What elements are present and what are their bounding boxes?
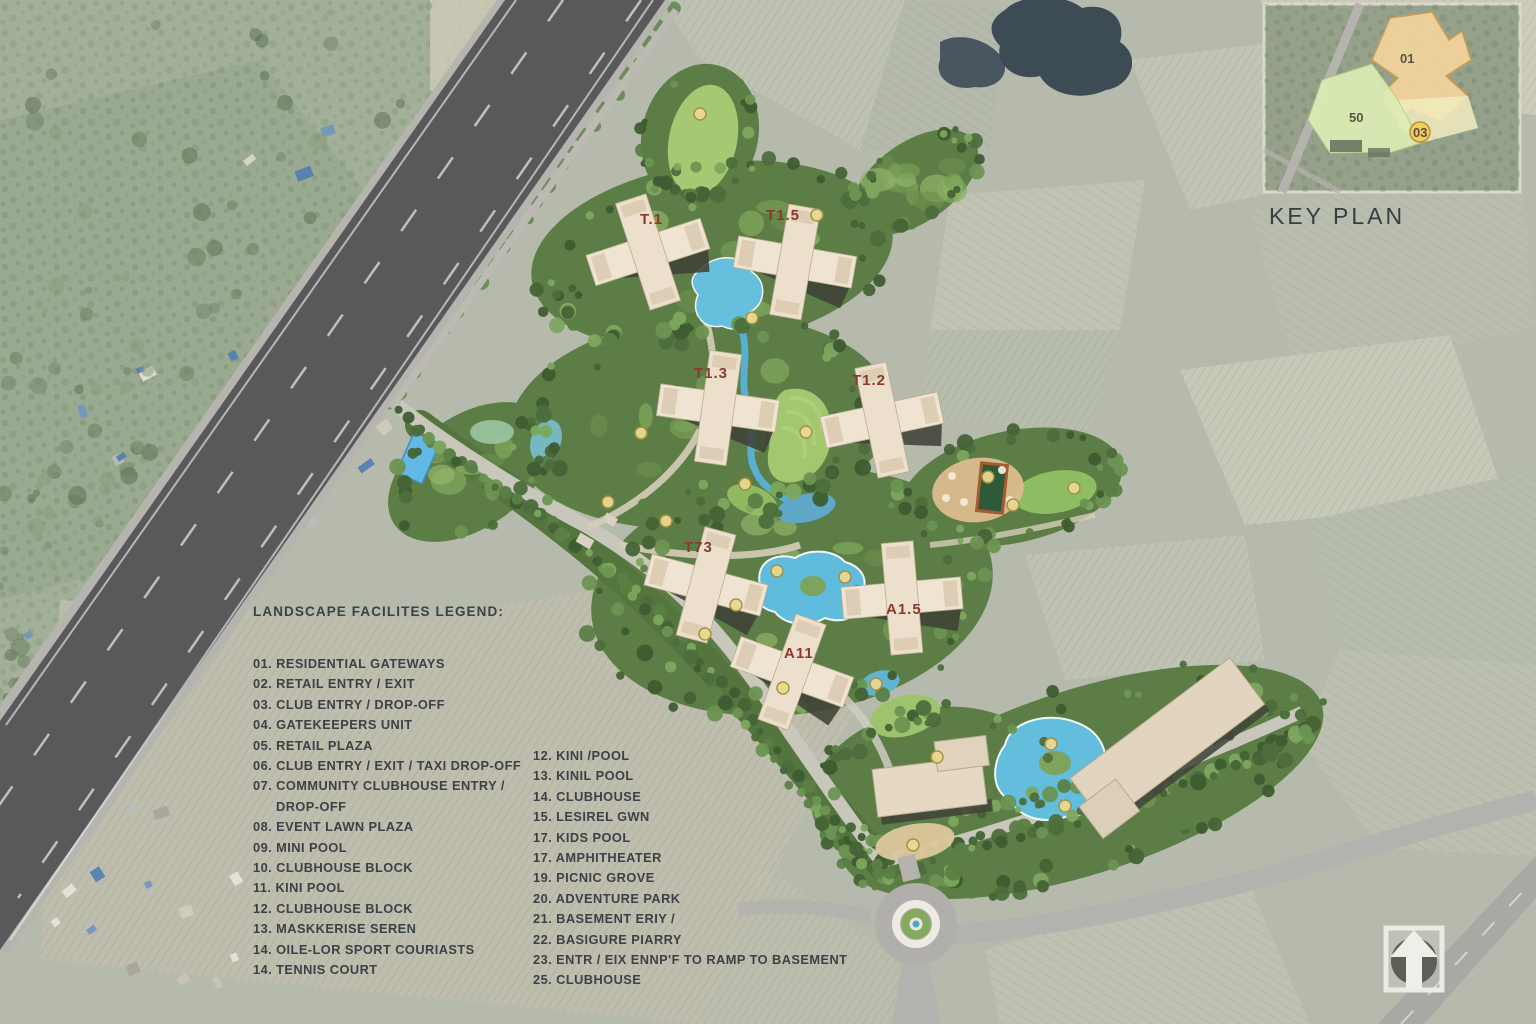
tower-label: T.1 xyxy=(640,211,663,228)
legend-item: 12. KINI /POOL xyxy=(533,746,847,766)
legend-item: 21. BASEMENT ERIY / xyxy=(533,909,847,929)
legend-column-1: 01. RESIDENTIAL GATEWAYS02. RETAIL ENTRY… xyxy=(253,654,521,981)
keyplan-parcel-label: 03 xyxy=(1413,125,1427,140)
legend-item: 06. CLUB ENTRY / EXIT / TAXI DROP-OFF xyxy=(253,756,521,776)
key-plan-label: KEY PLAN xyxy=(1269,203,1405,230)
legend-item: 14. TENNIS COURT xyxy=(253,960,521,980)
keyplan-parcel-label: 50 xyxy=(1349,110,1363,125)
site-marker xyxy=(777,682,789,694)
legend-item: 08. EVENT LAWN PLAZA xyxy=(253,817,521,837)
site-marker xyxy=(699,628,711,640)
legend-item: 02. RETAIL ENTRY / EXIT xyxy=(253,674,521,694)
legend-item: 05. RETAIL PLAZA xyxy=(253,736,521,756)
legend-item: 04. GATEKEEPERS UNIT xyxy=(253,715,521,735)
site-marker xyxy=(982,471,994,483)
site-marker xyxy=(771,565,783,577)
site-marker xyxy=(811,209,823,221)
site-plan-page: T.1 T1.5 T1.3 T1.2 T73 A1.5 A11 01 50 03… xyxy=(0,0,1536,1024)
site-marker xyxy=(1045,738,1057,750)
site-marker xyxy=(907,839,919,851)
site-marker xyxy=(931,751,943,763)
legend-item: 14. CLUBHOUSE xyxy=(533,787,847,807)
tower-label: T1.2 xyxy=(852,372,886,389)
tower-label: T73 xyxy=(684,539,713,556)
legend-item: 17. KIDS POOL xyxy=(533,828,847,848)
legend-column-2: 12. KINI /POOL13. KINIL POOL14. CLUBHOUS… xyxy=(533,746,847,991)
site-marker xyxy=(746,312,758,324)
site-marker xyxy=(635,427,647,439)
legend-item: 22. BASIGURE PIARRY xyxy=(533,930,847,950)
site-marker xyxy=(694,108,706,120)
legend-item: 09. MINI POOL xyxy=(253,838,521,858)
legend-item: 14. OILE-LOR SPORT COURIASTS xyxy=(253,940,521,960)
legend-title: LANDSCAPE FACILITES LEGEND: xyxy=(253,604,504,619)
site-marker xyxy=(1068,482,1080,494)
tower-label: A1.5 xyxy=(886,601,922,618)
legend-item: 17. AMPHITHEATER xyxy=(533,848,847,868)
legend-item: 12. CLUBHOUSE BLOCK xyxy=(253,899,521,919)
site-marker xyxy=(602,496,614,508)
legend-item: 23. ENTR / EIX ENNP'F TO RAMP TO BASEMEN… xyxy=(533,950,847,970)
legend-item: 11. KINI POOL xyxy=(253,878,521,898)
legend-item: 25. CLUBHOUSE xyxy=(533,970,847,990)
tower-label: T1.3 xyxy=(694,365,728,382)
legend-item: 10. CLUBHOUSE BLOCK xyxy=(253,858,521,878)
keyplan-parcel-label: 01 xyxy=(1400,51,1414,66)
site-marker xyxy=(1007,499,1019,511)
site-marker xyxy=(1059,800,1071,812)
site-marker xyxy=(800,426,812,438)
legend-item: 20. ADVENTURE PARK xyxy=(533,889,847,909)
site-marker xyxy=(870,678,882,690)
legend-item: 13. MASKKERISE SEREN xyxy=(253,919,521,939)
site-marker xyxy=(730,599,742,611)
tower-label: T1.5 xyxy=(766,207,800,224)
site-marker xyxy=(839,571,851,583)
key-plan-inset: 01 50 03 xyxy=(1264,4,1520,192)
legend-item: 01. RESIDENTIAL GATEWAYS xyxy=(253,654,521,674)
legend-item: 13. KINIL POOL xyxy=(533,766,847,786)
north-arrow-icon xyxy=(1386,928,1442,990)
site-marker xyxy=(739,478,751,490)
legend-item: 03. CLUB ENTRY / DROP-OFF xyxy=(253,695,521,715)
legend-item: 07. COMMUNITY CLUBHOUSE ENTRY /DROP-OFF xyxy=(253,776,521,817)
legend-item: 15. LESIREL GWN xyxy=(533,807,847,827)
legend-item: 19. PICNIC GROVE xyxy=(533,868,847,888)
site-marker xyxy=(660,515,672,527)
legend: LANDSCAPE FACILITES LEGEND: 01. RESIDENT… xyxy=(253,604,504,619)
tower-label: A11 xyxy=(784,645,814,662)
